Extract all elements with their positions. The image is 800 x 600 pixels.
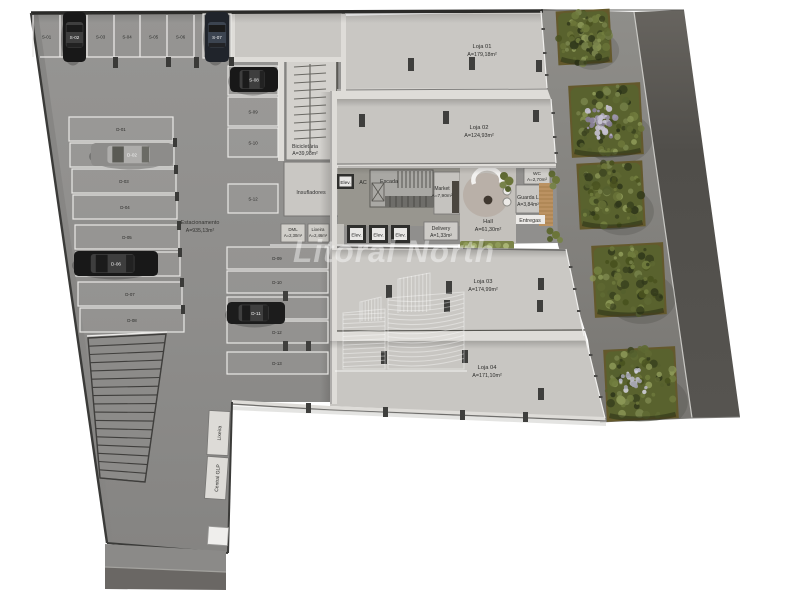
svg-text:A=124,93m²: A=124,93m² <box>464 133 494 139</box>
svg-text:Elev.: Elev. <box>340 180 350 186</box>
svg-text:S-09: S-09 <box>248 110 258 115</box>
svg-text:D-12: D-12 <box>272 330 282 335</box>
svg-text:A=935,13m²: A=935,13m² <box>186 228 215 234</box>
svg-text:D-03: D-03 <box>119 179 129 184</box>
svg-text:D-10: D-10 <box>272 280 282 285</box>
svg-text:Estacionamento: Estacionamento <box>181 220 220 226</box>
svg-text:Loja 03: Loja 03 <box>473 279 492 285</box>
svg-text:Bicicletária: Bicicletária <box>292 144 318 150</box>
svg-text:A=3,84m²: A=3,84m² <box>517 202 539 208</box>
svg-text:D-01: D-01 <box>116 127 126 132</box>
svg-text:D-06: D-06 <box>111 261 121 266</box>
svg-text:Loja 04: Loja 04 <box>477 365 497 371</box>
svg-text:Litoral North: Litoral North <box>293 233 495 269</box>
svg-text:Loja 02: Loja 02 <box>469 125 488 131</box>
svg-text:S-07: S-07 <box>212 35 222 40</box>
svg-text:D-08: D-08 <box>127 318 137 323</box>
svg-text:S-06: S-06 <box>176 35 186 40</box>
svg-text:A=2,70m²: A=2,70m² <box>527 177 548 182</box>
svg-text:A=174,99m²: A=174,99m² <box>468 287 498 293</box>
svg-text:Delivery: Delivery <box>432 226 451 232</box>
svg-text:A=39,98m²: A=39,98m² <box>292 151 318 157</box>
svg-text:D-07: D-07 <box>125 292 135 297</box>
svg-text:Hall: Hall <box>483 219 493 225</box>
svg-text:DML: DML <box>288 227 298 232</box>
svg-text:S-05: S-05 <box>149 35 159 40</box>
svg-text:S-03: S-03 <box>96 35 106 40</box>
svg-text:A=7,90m²: A=7,90m² <box>432 193 453 199</box>
svg-text:Loja 01: Loja 01 <box>472 44 491 50</box>
svg-text:Guarda L: Guarda L <box>517 195 539 201</box>
svg-text:S-08: S-08 <box>249 77 259 82</box>
svg-text:D-04: D-04 <box>120 205 130 210</box>
svg-text:D-09: D-09 <box>272 256 282 261</box>
svg-text:AC: AC <box>359 180 367 186</box>
svg-text:D-11: D-11 <box>251 311 261 316</box>
svg-text:Escada: Escada <box>380 179 398 185</box>
svg-text:S-10: S-10 <box>248 141 258 146</box>
svg-text:S-01: S-01 <box>42 35 52 40</box>
svg-text:Market: Market <box>434 186 450 192</box>
svg-text:Lixeira: Lixeira <box>217 425 224 440</box>
svg-text:S-02: S-02 <box>70 35 80 40</box>
svg-text:S-12: S-12 <box>248 197 258 202</box>
svg-text:D-13: D-13 <box>272 361 282 366</box>
svg-text:D-05: D-05 <box>122 235 132 240</box>
svg-text:Entregas: Entregas <box>519 218 541 224</box>
svg-text:D-02: D-02 <box>127 152 137 157</box>
svg-text:S-04: S-04 <box>122 35 132 40</box>
svg-text:A=171,10m²: A=171,10m² <box>472 373 502 379</box>
